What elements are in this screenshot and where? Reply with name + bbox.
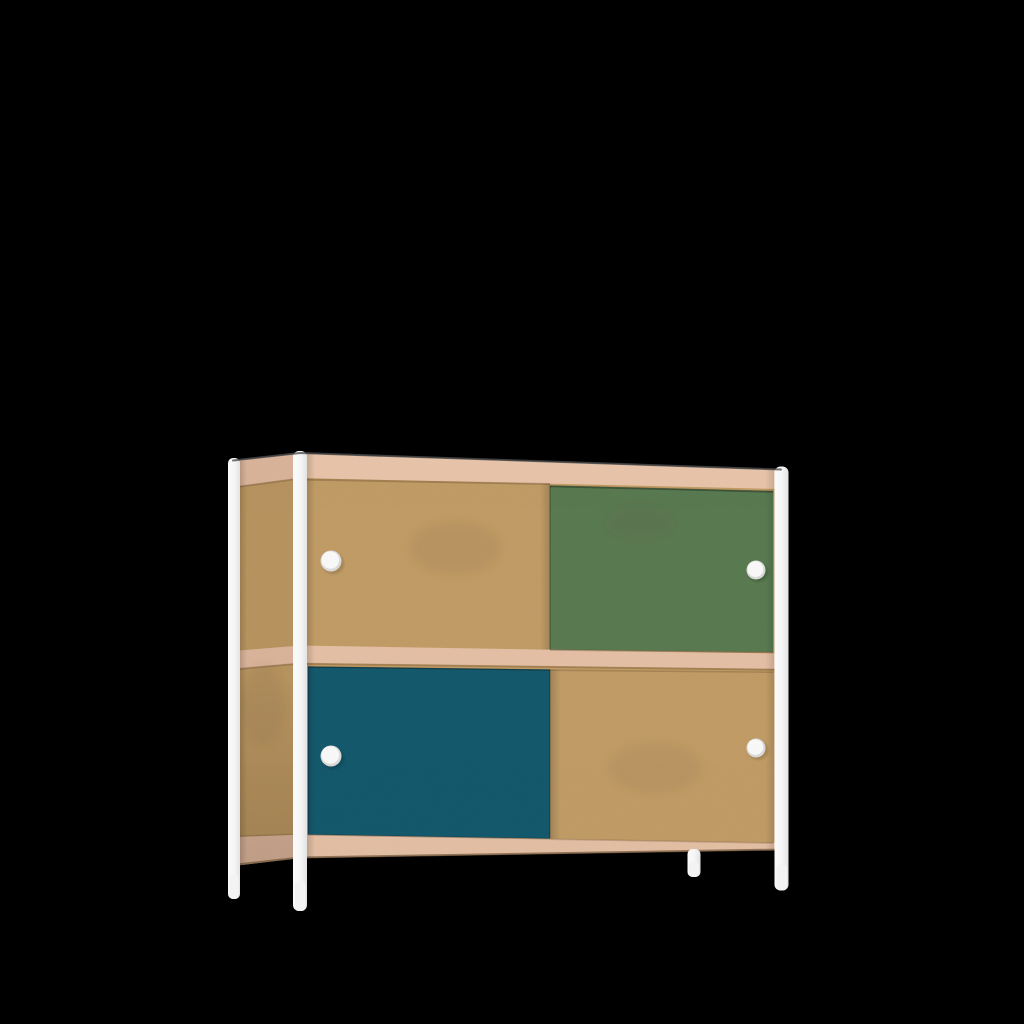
post-shadow-back-left (240, 461, 247, 865)
post-shadow-front-left (307, 454, 315, 858)
frame-post-back-left (228, 458, 240, 899)
foot-front-right (777, 864, 788, 891)
cabinet-render (0, 0, 1024, 1024)
foot-back-left (230, 874, 239, 899)
render-stage (0, 0, 1024, 1024)
foot-front-left (295, 882, 306, 911)
frame-post-front-left (293, 451, 307, 911)
frame-post-front-right (775, 467, 789, 891)
foot-back-right (689, 862, 699, 877)
